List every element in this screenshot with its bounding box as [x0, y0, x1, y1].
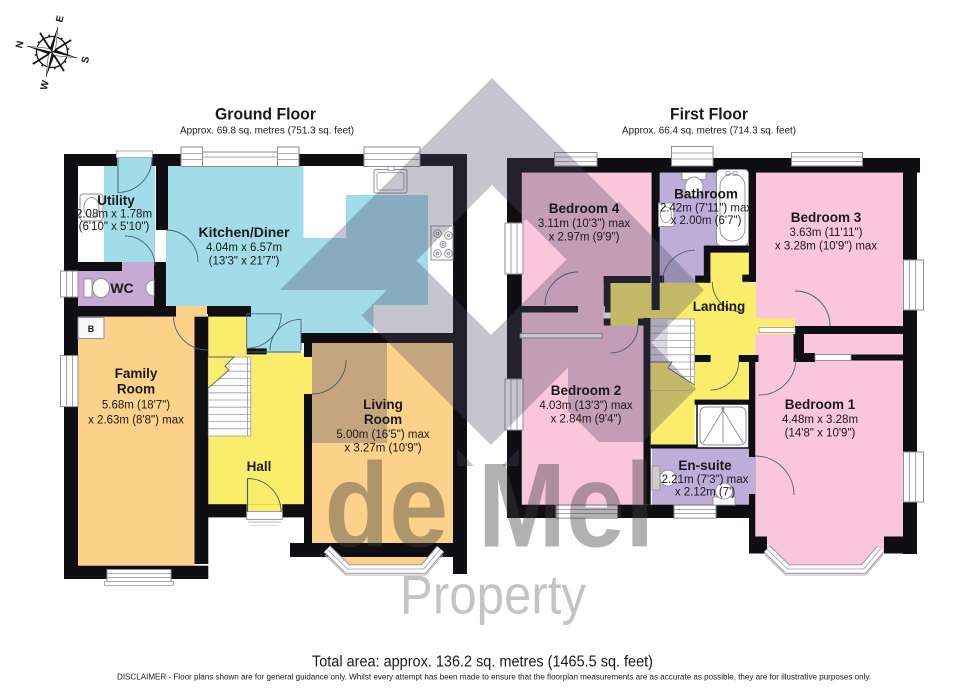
svg-text:Family: Family: [115, 366, 158, 381]
svg-text:(6'10" x 5'10"): (6'10" x 5'10"): [79, 221, 150, 233]
svg-text:x 2.63m (8'8") max: x 2.63m (8'8") max: [88, 415, 184, 427]
svg-text:Bedroom 3: Bedroom 3: [791, 210, 862, 225]
svg-text:2.21m (7'3") max: 2.21m (7'3") max: [662, 474, 749, 486]
svg-text:Total area: approx. 136.2 sq.: Total area: approx. 136.2 sq. metres (14…: [312, 654, 653, 671]
svg-text:x 3.28m (10'9") max: x 3.28m (10'9") max: [775, 241, 877, 253]
svg-text:Bedroom 4: Bedroom 4: [549, 201, 620, 216]
svg-text:(13'3" x 21'7"): (13'3" x 21'7"): [209, 256, 280, 268]
svg-text:5.68m (18'7"): 5.68m (18'7"): [102, 400, 170, 412]
svg-text:Bathroom: Bathroom: [674, 187, 738, 202]
svg-text:(14'8" x 10'9"): (14'8" x 10'9"): [785, 428, 856, 440]
svg-text:Utility: Utility: [97, 193, 135, 208]
svg-text:Hall: Hall: [247, 459, 272, 474]
svg-text:Room: Room: [364, 412, 402, 427]
svg-text:Property: Property: [400, 564, 586, 626]
svg-text:4.48m x 3.28m: 4.48m x 3.28m: [782, 414, 858, 426]
svg-text:Living: Living: [363, 397, 403, 412]
svg-text:Kitchen/Diner: Kitchen/Diner: [198, 224, 290, 240]
svg-text:Bedroom 2: Bedroom 2: [551, 383, 622, 398]
svg-text:En-suite: En-suite: [678, 458, 732, 473]
svg-text:x 3.27m (10'9"): x 3.27m (10'9"): [344, 443, 421, 455]
svg-text:2.08m x 1.78m: 2.08m x 1.78m: [76, 209, 152, 221]
svg-text:Approx. 66.4 sq. metres (714.3: Approx. 66.4 sq. metres (714.3 sq. feet): [622, 125, 796, 137]
svg-text:Approx. 69.8 sq. metres (751.3: Approx. 69.8 sq. metres (751.3 sq. feet): [180, 125, 354, 137]
svg-text:x 2.97m (9'9"): x 2.97m (9'9"): [549, 232, 620, 244]
svg-text:Room: Room: [117, 382, 155, 397]
svg-text:WC: WC: [110, 280, 133, 296]
svg-text:Ground Floor: Ground Floor: [215, 105, 316, 124]
svg-text:x 2.84m (9'4"): x 2.84m (9'4"): [551, 414, 622, 426]
svg-text:x 2.12m (7'): x 2.12m (7'): [675, 487, 736, 499]
svg-text:2.42m (7'11") max: 2.42m (7'11") max: [660, 203, 753, 215]
svg-text:Landing: Landing: [693, 299, 746, 314]
svg-text:5.00m (16'5") max: 5.00m (16'5") max: [336, 429, 429, 441]
svg-text:3.11m (10'3") max: 3.11m (10'3") max: [538, 218, 631, 230]
svg-text:First Floor: First Floor: [670, 105, 748, 124]
svg-text:DISCLAIMER - Floor plans sh: DISCLAIMER - Floor plans shown are for g…: [117, 673, 871, 682]
svg-text:3.63m (11'11"): 3.63m (11'11"): [790, 227, 863, 239]
svg-text:Bedroom 1: Bedroom 1: [785, 397, 856, 412]
svg-text:x 2.00m (6'7"): x 2.00m (6'7"): [671, 215, 742, 227]
svg-text:4.03m (13'3") max: 4.03m (13'3") max: [539, 400, 632, 412]
svg-text:4.04m x 6.57m: 4.04m x 6.57m: [206, 242, 282, 254]
svg-text:de Mel: de Mel: [325, 438, 655, 572]
svg-text:B: B: [88, 324, 95, 334]
